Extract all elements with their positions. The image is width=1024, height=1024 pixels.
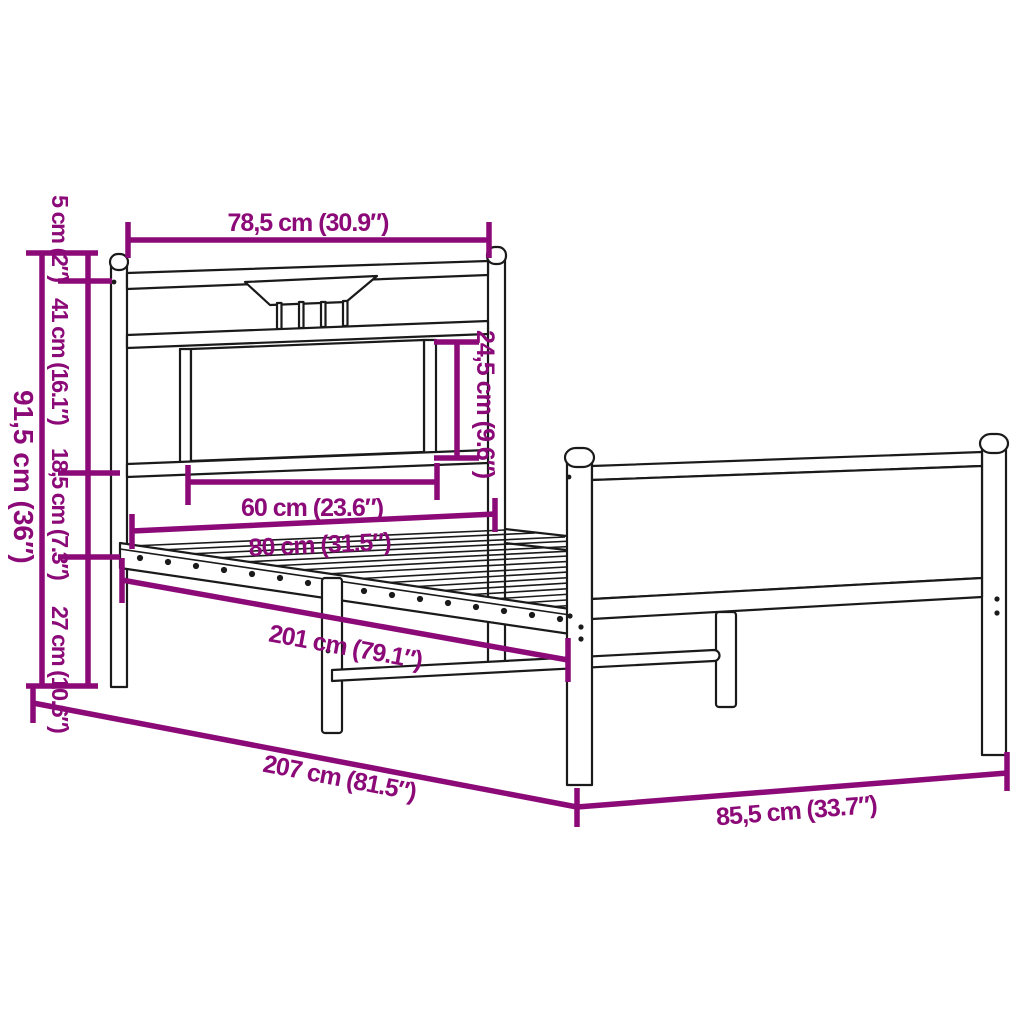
bed-frame-diagram-canvas: 78,5 cm (30.9″) 91,5 cm (36″) 5 cm (2″) …: [0, 0, 1024, 1024]
headboard-ornament-bar: [343, 301, 348, 326]
dimension-diagram: 78,5 cm (30.9″) 91,5 cm (36″) 5 cm (2″) …: [0, 0, 1024, 1024]
headboard: [110, 247, 506, 687]
footboard-panel: [592, 466, 982, 599]
dim-label-headboard-total-height: 91,5 cm (36″): [8, 390, 39, 564]
screw-dot: [567, 613, 572, 618]
dim-total-length: 207 cm (81.5″): [33, 684, 577, 827]
screw-dot: [112, 280, 117, 285]
screw-dot: [578, 636, 583, 641]
screw-dot: [994, 596, 999, 601]
dim-label-ground-clearance: 27 cm (10.6″): [47, 606, 73, 733]
dim-label-finial-height: 5 cm (2″): [47, 195, 73, 282]
dim-label-panel-height: 24,5 cm (9.6″): [471, 330, 499, 479]
headboard-panel: [191, 340, 424, 461]
dim-footboard-width: 85,5 cm (33.7″): [577, 752, 1007, 831]
dim-panel-height: 24,5 cm (9.6″): [434, 330, 499, 479]
screw-dot: [994, 610, 999, 615]
dim-label-headboard-upper-height: 41 cm (16.1″): [47, 298, 73, 425]
footboard: [565, 434, 1008, 785]
screw-dot: [567, 475, 572, 480]
dim-label-total-length: 207 cm (81.5″): [261, 750, 419, 807]
footboard-far-finial: [980, 434, 1008, 453]
dim-headboard-width: 78,5 cm (30.9″): [128, 209, 489, 258]
headboard-panel-left-stile: [180, 349, 191, 463]
dim-label-rail-section-height: 18,5 cm (7.3″): [47, 448, 73, 580]
headboard-ornament-trapezoid: [245, 276, 377, 305]
headboard-ornament-bar: [299, 302, 304, 328]
screw-dot: [578, 624, 583, 629]
dim-height-chain: 5 cm (2″) 41 cm (16.1″) 18,5 cm (7.3″) 2…: [47, 195, 120, 733]
dim-label-headboard-width: 78,5 cm (30.9″): [228, 209, 390, 237]
footboard-near-finial: [565, 448, 594, 467]
headboard-ornament-bar: [277, 303, 282, 329]
headboard-ornament-bar: [321, 302, 326, 327]
dim-label-frame-width: 80 cm (31.5″): [248, 528, 392, 562]
headboard-panel-right-stile: [424, 340, 436, 453]
footboard-far-post: [982, 450, 1006, 755]
footboard-near-post: [567, 462, 592, 785]
